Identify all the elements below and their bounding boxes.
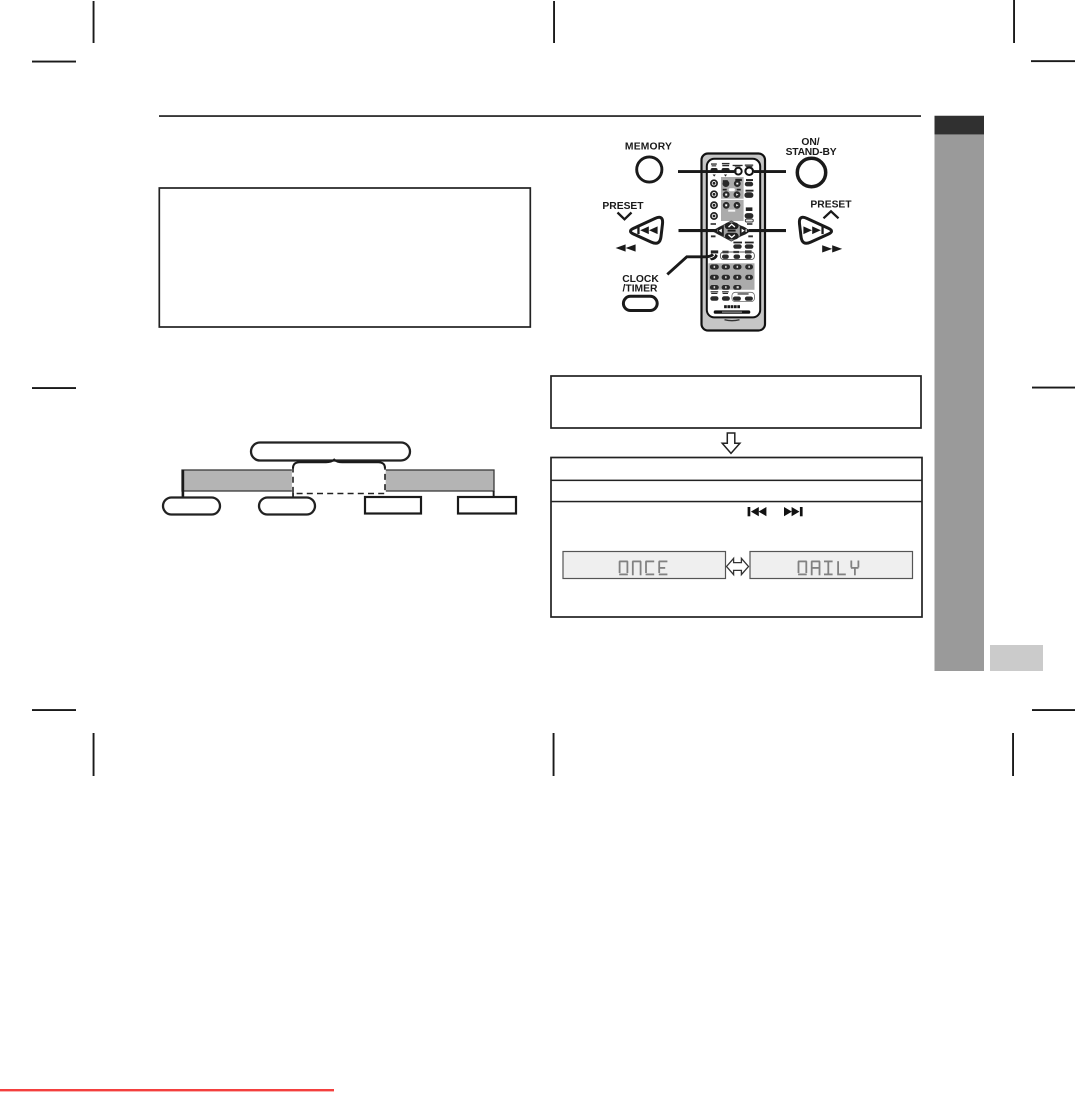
svg-text:STAND-BY: STAND-BY (786, 147, 837, 158)
svg-text:MEMORY: MEMORY (625, 142, 672, 153)
svg-text:PRESET: PRESET (602, 201, 644, 212)
svg-text:PRESET: PRESET (810, 200, 852, 211)
svg-text:/TIMER: /TIMER (623, 284, 658, 295)
